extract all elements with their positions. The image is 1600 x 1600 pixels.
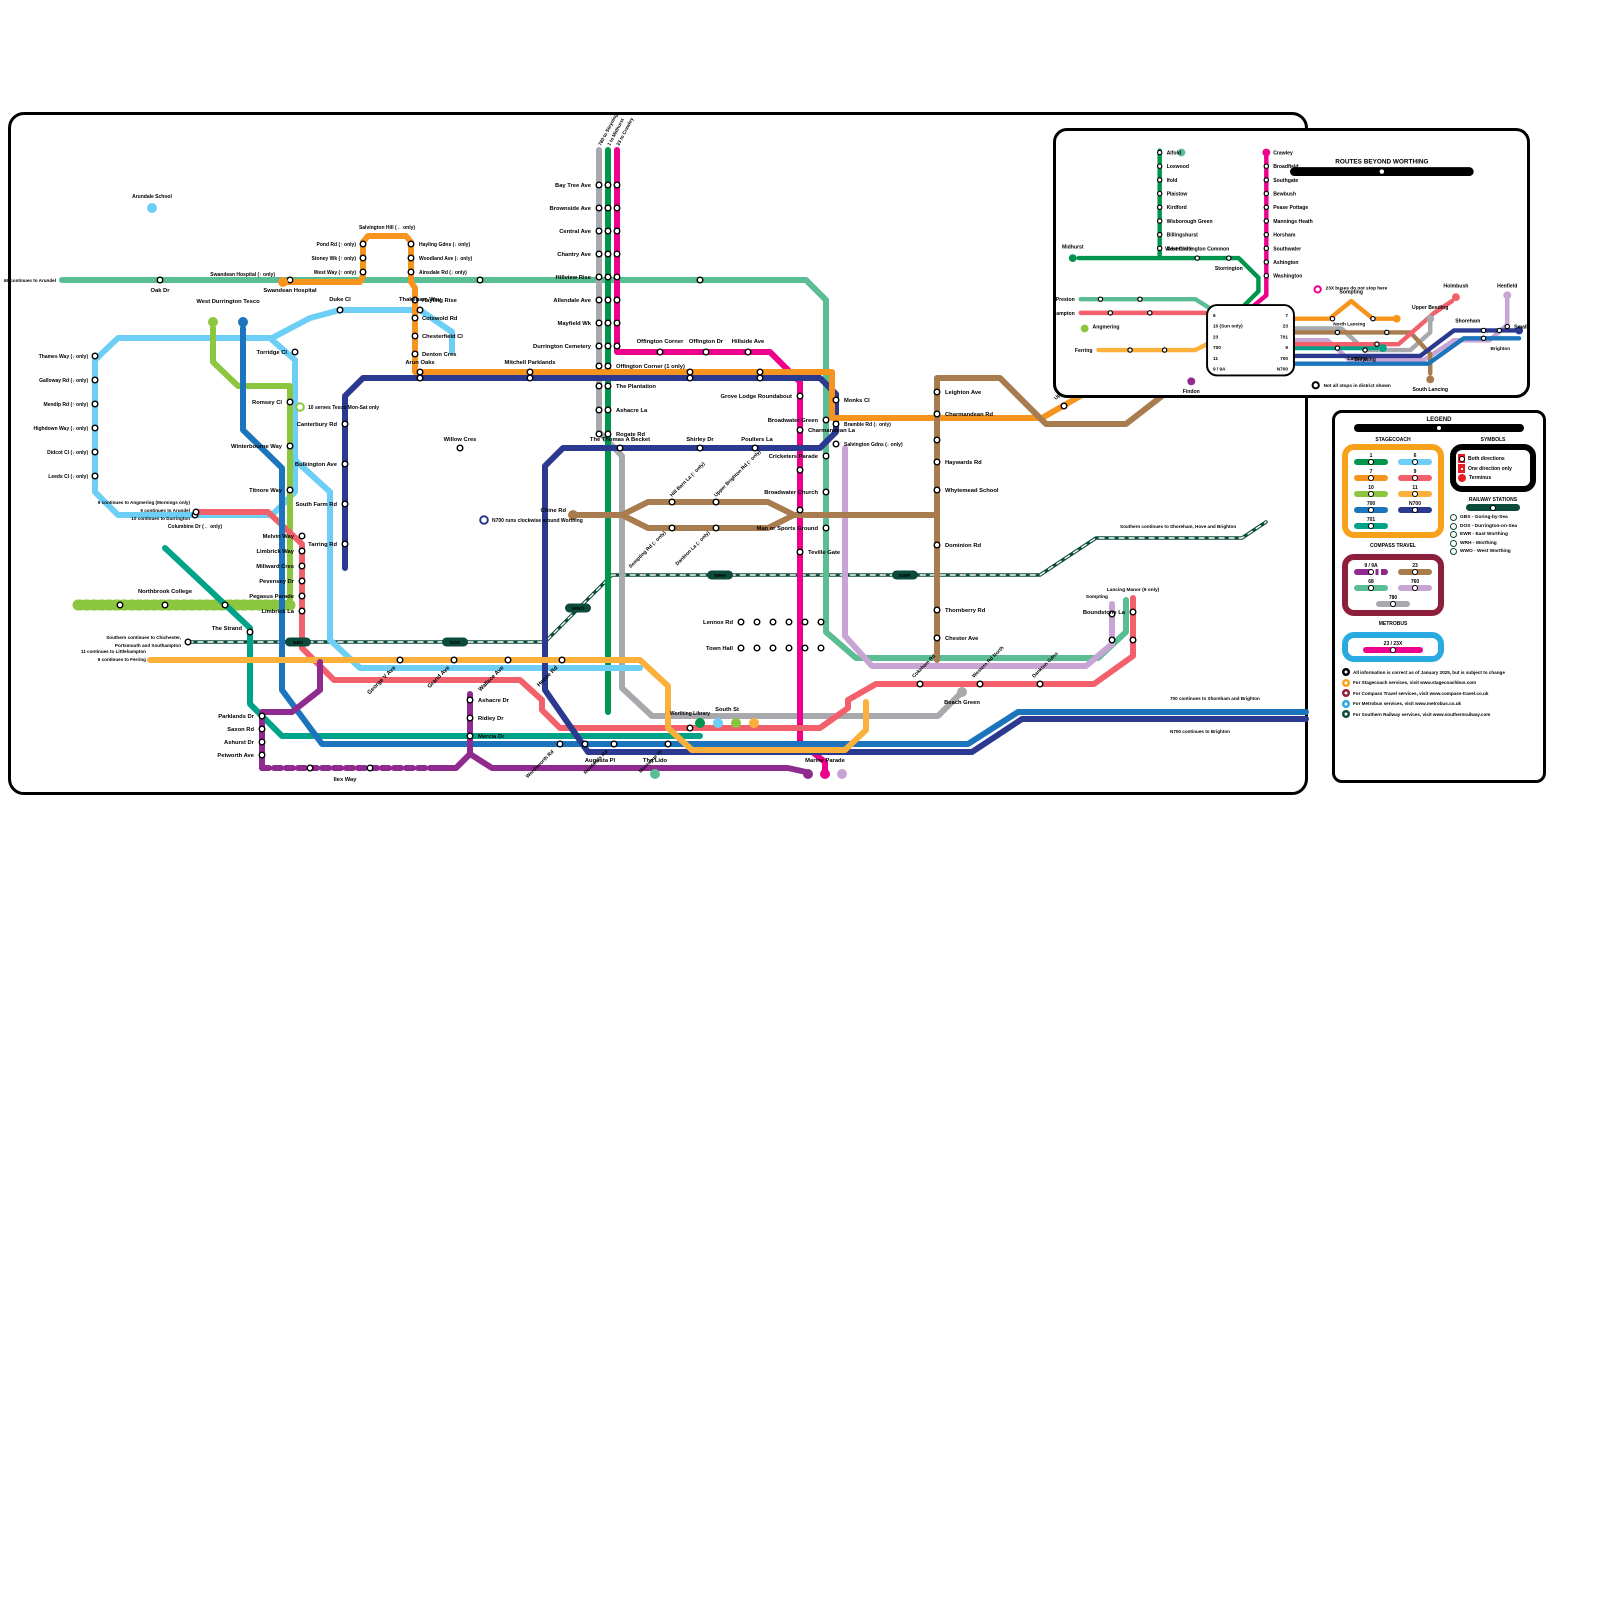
station-label: Henfield <box>1497 283 1517 289</box>
station-dot <box>1108 311 1112 315</box>
inset-box <box>1207 305 1294 375</box>
station-label: Holmbush <box>1443 283 1468 289</box>
station-dot <box>1481 328 1485 332</box>
symbols-title: SYMBOLS <box>1450 437 1536 443</box>
terminus-dot <box>1262 149 1270 157</box>
station-label: East Preston <box>1056 297 1075 303</box>
symbol-label: Terminus <box>1469 475 1491 481</box>
route-chip-2323X: 23 / 23X <box>1358 641 1428 653</box>
symbol-one-direction: One direction only <box>1458 464 1528 473</box>
legend-note: All information is correct as of January… <box>1342 668 1536 676</box>
legend-notes: All information is correct as of January… <box>1342 668 1536 718</box>
station-dot <box>1128 348 1132 352</box>
i-route-11-west <box>1098 342 1211 350</box>
station-label: Littlehampton <box>1056 311 1075 317</box>
station-dot <box>1371 317 1375 321</box>
route-chip-701: 701 <box>1349 517 1393 529</box>
route-chip-6: 6 <box>1393 453 1437 465</box>
station-label: Loxwood <box>1167 164 1189 170</box>
symbols-box: Both directions One direction only Termi… <box>1450 444 1536 492</box>
terminus-dot <box>1069 254 1077 262</box>
station-label: Not all stops in district shown <box>1324 383 1391 388</box>
station-label: 6 <box>1213 313 1216 318</box>
railway-station-list: GBS - Goring-by-SeaDOS - Durrington-on-S… <box>1450 514 1536 555</box>
route-chip-23: 23 <box>1393 563 1437 575</box>
station-label: 9 / 9A <box>1213 367 1226 372</box>
legend-note: For Stagecoach services, visit www.stage… <box>1342 679 1536 687</box>
station-label: Midhurst <box>1062 244 1084 250</box>
station-label: Pease Pottage <box>1273 205 1308 211</box>
station-label: Broadfield <box>1273 164 1298 170</box>
station-label: Horsham <box>1273 233 1296 239</box>
metrobus-title: METROBUS <box>1342 621 1444 627</box>
railway-station-item: DOS - Durrington-on-Sea <box>1450 523 1536 530</box>
legend-title: LEGEND <box>1342 417 1536 423</box>
terminus-icon <box>1458 474 1466 482</box>
station-label: Ashington <box>1273 260 1298 266</box>
station-label: Southwater <box>1273 246 1301 252</box>
station-dot <box>1330 317 1334 321</box>
one-direction-icon <box>1458 464 1465 473</box>
station-label: ROUTES BEYOND WORTHING <box>1335 158 1428 165</box>
station-label: Shoreham <box>1455 319 1481 325</box>
symbol-terminus: Terminus <box>1458 474 1528 482</box>
legend-col-right: SYMBOLS Both directions One direction on… <box>1450 437 1536 662</box>
station-dot <box>1158 164 1162 168</box>
terminus-dot <box>1187 377 1195 385</box>
station-label: 23 <box>1213 334 1219 339</box>
station-dot <box>1481 336 1485 340</box>
station-label: 700 <box>1213 345 1221 350</box>
station-dot <box>1264 178 1268 182</box>
legend-title-bar <box>1354 424 1524 432</box>
station-label: 23 <box>1283 324 1289 329</box>
symbol-label: One direction only <box>1468 466 1512 472</box>
station-dot <box>1385 330 1389 334</box>
station-dot <box>1264 274 1268 278</box>
legend-note: For Metrobus services, visit www.metrobu… <box>1342 700 1536 708</box>
inset-panel: ROUTES BEYOND WORTHINGAlfoldLoxwoodIfold… <box>1053 128 1530 398</box>
route-chip-11: 11 <box>1393 485 1437 497</box>
station-label: Ifold <box>1167 178 1178 184</box>
railway-line-sample <box>1466 504 1520 511</box>
station-label: Wisborough Green <box>1167 219 1213 225</box>
legend-note: For Southern Railway services, visit www… <box>1342 710 1536 718</box>
station-label: Plaistow <box>1167 192 1188 198</box>
railway-title: RAILWAY STATIONS <box>1450 497 1536 503</box>
route-chip-1: 1 <box>1349 453 1393 465</box>
i-route-9-west <box>1081 313 1211 315</box>
station-label: Angmering <box>1093 325 1120 331</box>
route-chip-700: 700 <box>1349 501 1393 513</box>
symbol-both-directions: Both directions <box>1458 454 1528 463</box>
route-chip-760: 760 <box>1393 579 1437 591</box>
route-chip-99A: 9 / 9A <box>1349 563 1393 575</box>
legend-col-left: STAGECOACH 16791011700N700701 COMPASS TR… <box>1342 437 1444 662</box>
compass-title: COMPASS TRAVEL <box>1342 543 1444 549</box>
route-chip-780: 780 <box>1371 595 1415 607</box>
stagecoach-box: 16791011700N700701 <box>1342 444 1444 538</box>
station-label: 10 (Sun only) <box>1213 324 1243 329</box>
station-dot <box>1335 346 1339 350</box>
station-label: Lancing <box>1347 356 1367 362</box>
symbol-label: Both directions <box>1468 456 1505 462</box>
station-label: South Lancing <box>1412 387 1448 393</box>
station-dot <box>1264 219 1268 223</box>
station-label: Ferring <box>1075 348 1093 354</box>
station-dot <box>1098 297 1102 301</box>
station-dot <box>1335 330 1339 334</box>
station-dot <box>1375 342 1379 346</box>
station-dot <box>1264 232 1268 236</box>
station-label: Bewbush <box>1273 192 1296 198</box>
legend-panel: LEGEND STAGECOACH 16791011700N700701 COM… <box>1332 410 1546 783</box>
station-label: Brighton <box>1490 346 1510 351</box>
terminus-dot <box>1081 325 1089 333</box>
station-label: Washington <box>1273 274 1302 280</box>
station-label: Kirdford <box>1167 205 1187 211</box>
metrobus-box: 23 / 23X <box>1342 632 1444 662</box>
route-chip-N700: N700 <box>1393 501 1437 513</box>
transit-map-page: GBSDOSWWOWRHEWRBay Tree AveBrownside Ave… <box>0 0 1600 1600</box>
station-label: 11 <box>1213 356 1218 361</box>
station-dot <box>1264 191 1268 195</box>
station-dot <box>1158 232 1162 236</box>
railway-station-item: EWR - East Worthing <box>1450 531 1536 538</box>
station-label: North Lancing <box>1333 322 1365 327</box>
station-dot <box>1158 205 1162 209</box>
compass-box: 9 / 9A2368760780 <box>1342 554 1444 616</box>
station-label: 701 <box>1280 334 1288 339</box>
both-directions-icon <box>1458 454 1465 463</box>
terminus-dot <box>1393 315 1401 323</box>
stagecoach-title: STAGECOACH <box>1342 437 1444 443</box>
station-dot <box>1158 191 1162 195</box>
station-dot <box>1227 256 1231 260</box>
station-label: Southgate <box>1273 178 1298 184</box>
note-ring <box>1313 382 1319 388</box>
note-ring <box>1315 286 1321 292</box>
station-dot <box>1505 324 1509 328</box>
railway-station-item: GBS - Goring-by-Sea <box>1450 514 1536 521</box>
station-dot <box>1264 164 1268 168</box>
terminus-dot <box>1426 315 1434 323</box>
station-label: Upper Beeding <box>1412 305 1448 311</box>
station-label: West Chiltington Common <box>1165 246 1229 252</box>
station-label: 7 <box>1285 313 1288 318</box>
inset-map-svg: ROUTES BEYOND WORTHINGAlfoldLoxwoodIfold… <box>1056 131 1527 395</box>
station-label: Small Dole <box>1514 325 1527 331</box>
station-dot <box>1195 256 1199 260</box>
legend-note: For Compass Travel services, visit www.c… <box>1342 689 1536 697</box>
station-label: Alfold <box>1167 150 1182 156</box>
station-label: Billingshurst <box>1167 233 1199 239</box>
station-label: Findon <box>1183 389 1200 395</box>
station-label: 700 <box>1280 356 1288 361</box>
station-dot <box>1162 348 1166 352</box>
station-label: Storrington <box>1215 266 1243 272</box>
station-dot <box>1158 246 1162 250</box>
station-dot <box>1148 311 1152 315</box>
station-dot <box>1264 260 1268 264</box>
station-label: Sompting <box>1339 289 1363 295</box>
station-label: N700 <box>1277 367 1289 372</box>
station-label: 9 <box>1285 345 1288 350</box>
terminus-dot <box>1503 291 1511 299</box>
station-dot <box>1158 150 1162 154</box>
station-dot <box>1264 205 1268 209</box>
legend-bar-dot <box>1436 425 1442 431</box>
station-label: Crawley <box>1273 150 1293 156</box>
station-label: Mannings Heath <box>1273 219 1313 225</box>
terminus-dot <box>1379 344 1387 352</box>
i-route-7 <box>1293 301 1393 319</box>
route-chip-68: 68 <box>1349 579 1393 591</box>
station-dot <box>1264 246 1268 250</box>
route-chip-7: 7 <box>1349 469 1393 481</box>
station-dot <box>1497 328 1501 332</box>
railway-station-item: WRH - Worthing <box>1450 540 1536 547</box>
terminus-dot <box>1426 375 1434 383</box>
station-dot <box>1158 219 1162 223</box>
route-chip-9: 9 <box>1393 469 1437 481</box>
route-chip-10: 10 <box>1349 485 1393 497</box>
terminus-dot <box>1452 293 1460 301</box>
railway-station-item: WWO - West Worthing <box>1450 548 1536 555</box>
station-dot <box>1158 178 1162 182</box>
station-dot <box>1363 348 1367 352</box>
station-dot <box>1138 297 1142 301</box>
bar-dot <box>1380 169 1385 173</box>
